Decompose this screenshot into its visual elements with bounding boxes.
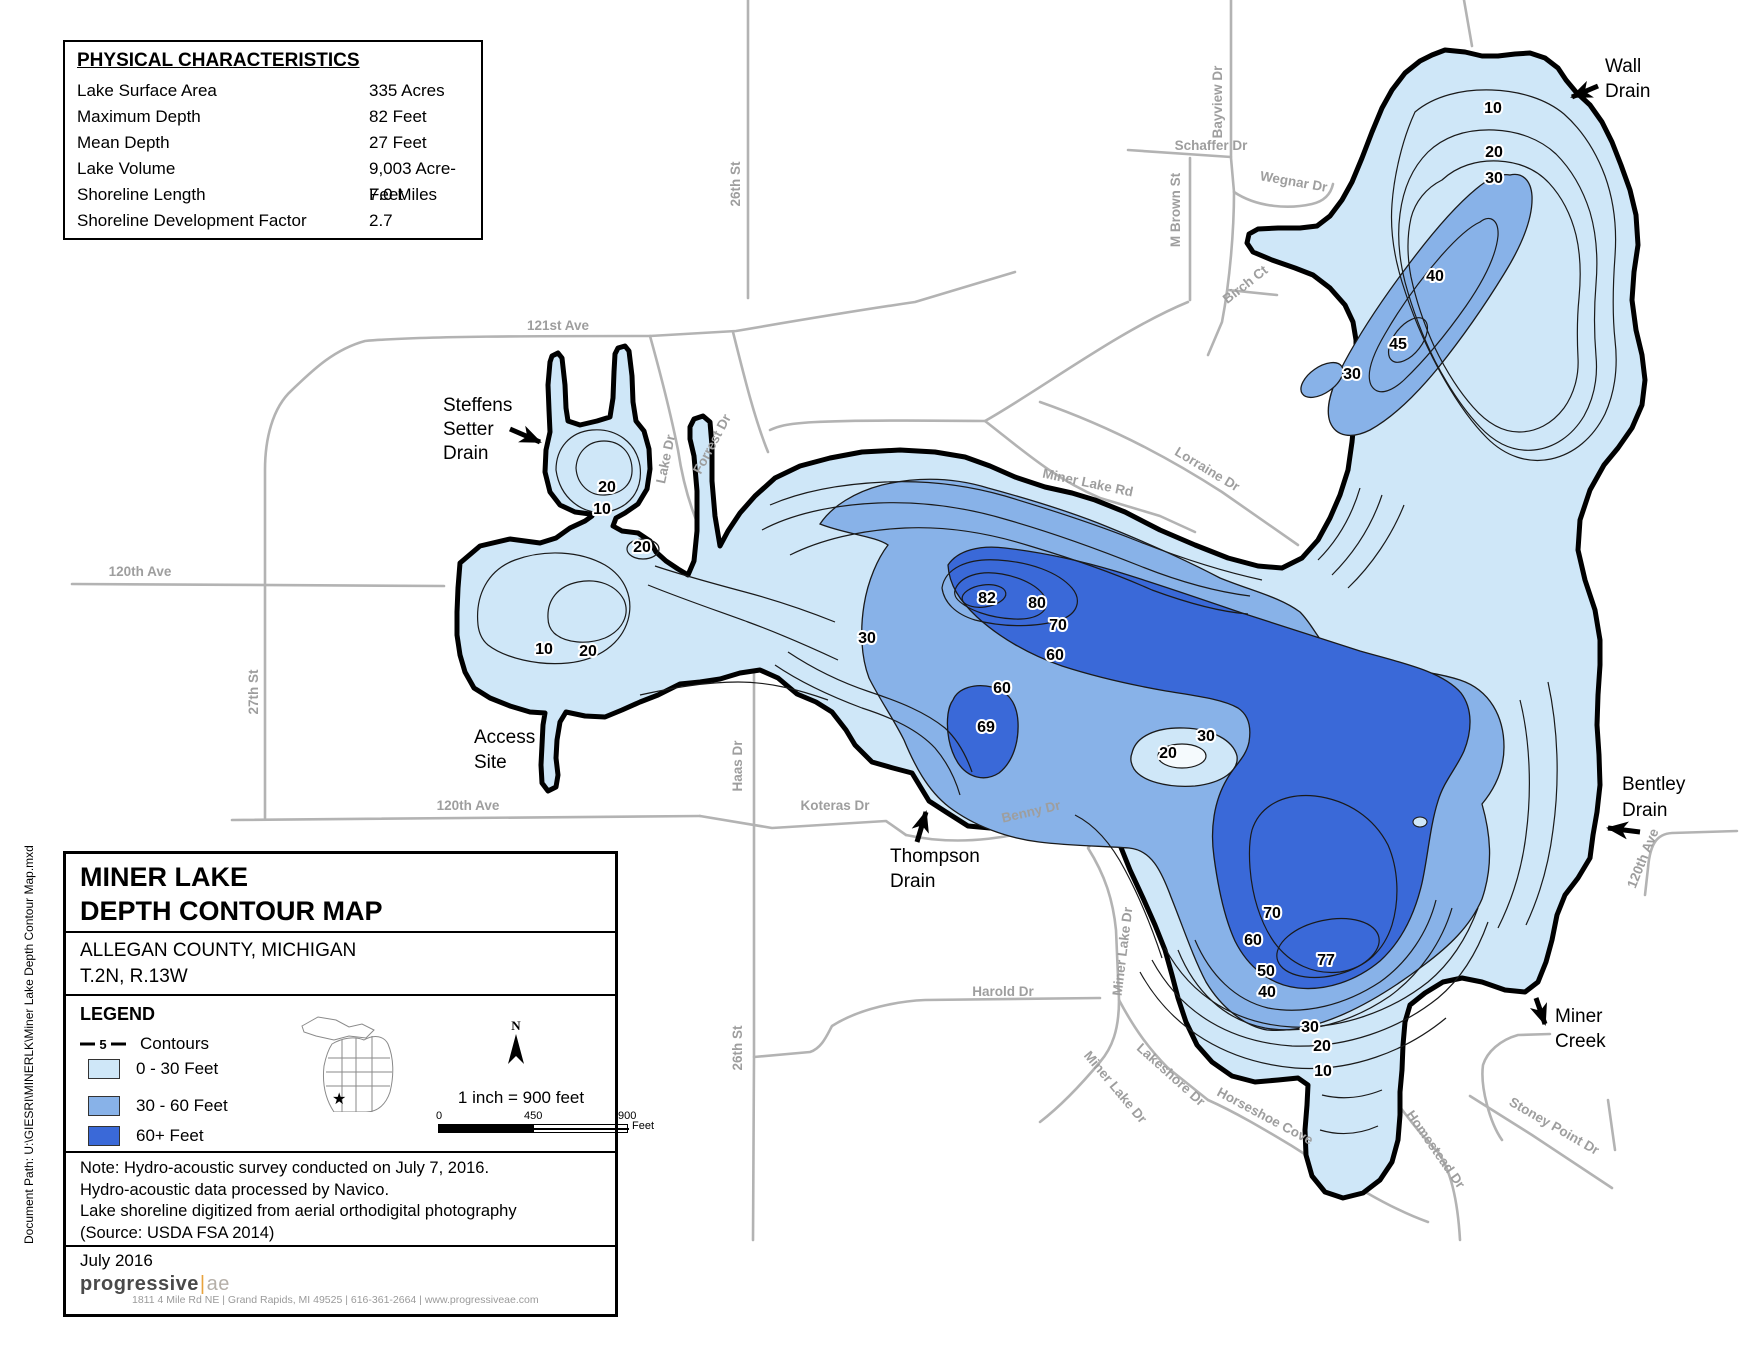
road-label: Schaffer Dr	[1175, 138, 1249, 153]
road-to-north-cluster	[985, 302, 1188, 421]
depth-label: 40	[1258, 984, 1276, 1001]
phys-value: 7.0 Miles	[369, 182, 437, 208]
road-label: Miner Lake Dr	[1081, 1048, 1150, 1127]
note-line: (Source: USDA FSA 2014)	[80, 1223, 601, 1245]
depth-label: 20	[633, 539, 651, 556]
location-star-icon: ★	[332, 1091, 346, 1108]
annotation-label: Thompson	[890, 846, 980, 867]
depth-label: 20	[1313, 1038, 1331, 1055]
road-label: 120th Ave	[1624, 826, 1662, 890]
steffens-setter-drain-annotation: Steffens Setter Drain	[443, 395, 540, 464]
legend-class-label: 0 - 30 Feet	[136, 1059, 218, 1079]
phys-label: Lake Surface Area	[77, 81, 217, 100]
road-label: Bayview Dr	[1210, 65, 1225, 139]
phys-label: Shoreline Development Factor	[77, 211, 307, 230]
annotation-label: Setter	[443, 419, 494, 440]
depth-label: 60	[1046, 647, 1064, 664]
phys-label: Mean Depth	[77, 133, 170, 152]
wall-drain-annotation: Wall Drain	[1572, 56, 1650, 102]
road-stub-se	[1608, 1100, 1615, 1150]
depth-label: 20	[579, 643, 597, 660]
company-address: 1811 4 Mile Rd NE | Grand Rapids, MI 495…	[80, 1294, 601, 1306]
annotation-label: Drain	[443, 443, 488, 464]
road-label: Harold Dr	[972, 984, 1034, 999]
depth-label: 45	[1389, 336, 1407, 353]
depth-label: 70	[1263, 905, 1281, 922]
map-title-line2: DEPTH CONTOUR MAP	[80, 894, 601, 928]
legend-contours-item: 5 Contours	[80, 1034, 209, 1054]
phys-label: Lake Volume	[77, 159, 175, 178]
map-subtitle-section: ALLEGAN COUNTY, MICHIGAN T.2N, R.13W	[66, 933, 615, 996]
phys-row: Lake Surface Area 335 Acres	[77, 78, 469, 104]
depth-label: 10	[1484, 100, 1502, 117]
contour-line-symbol: 5	[80, 1037, 128, 1051]
depth-label: 82	[978, 590, 996, 607]
road-koteras-dr	[700, 816, 906, 835]
legend-section: LEGEND 5 Contours 0 - 30 Feet 30 - 60 Fe…	[66, 996, 615, 1153]
road-label: M Brown St	[1168, 172, 1183, 247]
note-line: Lake shoreline digitized from aerial ort…	[80, 1201, 601, 1223]
road-label: 26th St	[728, 161, 743, 207]
annotation-label: Bentley	[1622, 774, 1686, 795]
michigan-inset-map: ★	[294, 1012, 404, 1117]
legend-swatch-60plus	[88, 1126, 120, 1146]
phys-row: Mean Depth 27 Feet	[77, 130, 469, 156]
annotation-label: Drain	[890, 871, 935, 892]
scale-bar	[438, 1124, 628, 1133]
depth-label: 10	[535, 641, 553, 658]
depth-label: 80	[1028, 595, 1046, 612]
logo-divider: |	[200, 1273, 206, 1295]
depth-label: 20	[1485, 144, 1503, 161]
road-stub-top	[1464, 0, 1472, 46]
phys-row: Lake Volume 9,003 Acre-Feet	[77, 156, 469, 182]
bentley-drain-annotation: Bentley Drain	[1608, 774, 1686, 832]
depth-label: 77	[1317, 952, 1335, 969]
road-harold-dr	[754, 998, 1100, 1057]
depth-label: 20	[598, 479, 616, 496]
legend-contours-label: Contours	[140, 1034, 209, 1054]
scale-ratio-text: 1 inch = 900 feet	[426, 1088, 616, 1108]
road-120th-ave-right	[1645, 831, 1737, 895]
road-label: Lake Dr	[653, 433, 678, 485]
road-label: 26th St	[730, 1025, 745, 1071]
depth-label: 60	[1244, 932, 1262, 949]
phys-label: Shoreline Length	[77, 185, 206, 204]
depth-label: 69	[977, 719, 995, 736]
depth-label: 50	[1257, 963, 1275, 980]
phys-value: 82 Feet	[369, 104, 427, 130]
note-line: Note: Hydro-acoustic survey conducted on…	[80, 1158, 601, 1180]
depth-label: 10	[593, 501, 611, 518]
notes-section: Note: Hydro-acoustic survey conducted on…	[66, 1153, 615, 1247]
township-label: T.2N, R.13W	[80, 964, 601, 990]
map-date: July 2016	[80, 1251, 601, 1271]
svg-text:5: 5	[99, 1037, 106, 1051]
map-title-section: MINER LAKE DEPTH CONTOUR MAP	[66, 854, 615, 933]
road-120th-ave-left	[72, 584, 444, 586]
logo-text: progressive	[80, 1273, 199, 1295]
road-label: Lakeshore Dr	[1134, 1040, 1209, 1109]
phys-value: 2.7	[369, 208, 393, 234]
annotation-label: Site	[474, 752, 507, 773]
road-label: 120th Ave	[437, 798, 500, 813]
depth-label: 30	[1485, 170, 1503, 187]
depth-label: 40	[1426, 268, 1444, 285]
road-haas-26th	[753, 632, 754, 1240]
road-120th-ave-bottom	[232, 816, 700, 820]
annotation-label: Drain	[1622, 800, 1667, 821]
road-label: Horseshoe Cove	[1215, 1084, 1317, 1147]
logo-suffix: ae	[207, 1273, 230, 1295]
depth-label: 30	[1343, 366, 1361, 383]
phys-row: Shoreline Length 7.0 Miles	[77, 182, 469, 208]
county-label: ALLEGAN COUNTY, MICHIGAN	[80, 938, 601, 964]
document-path-text: Document Path: U:\GIESRI\MINERLK\Miner L…	[22, 845, 36, 1244]
road-bayview-dr	[1231, 0, 1234, 192]
phys-value: 27 Feet	[369, 130, 427, 156]
physical-characteristics-title: PHYSICAL CHARACTERISTICS	[77, 50, 469, 72]
phys-row: Maximum Depth 82 Feet	[77, 104, 469, 130]
annotation-label: Creek	[1555, 1031, 1606, 1052]
depth-label: 30	[858, 630, 876, 647]
annotation-label: Access	[474, 727, 535, 748]
annotation-label: Miner	[1555, 1006, 1603, 1027]
contour-dot	[1413, 817, 1427, 827]
legend-class-label: 60+ Feet	[136, 1126, 204, 1146]
annotation-label: Drain	[1605, 81, 1650, 102]
road-label: Homestead Dr	[1403, 1108, 1468, 1192]
scale-unit-label: Feet	[632, 1120, 654, 1132]
miner-creek-annotation: Miner Creek	[1536, 998, 1606, 1052]
scale-tick: 0	[436, 1110, 442, 1122]
road-forrest-dr	[733, 332, 768, 452]
road-label: Koteras Dr	[800, 798, 870, 813]
road-label: 121st Ave	[527, 318, 590, 333]
access-site-annotation: Access Site	[474, 727, 535, 773]
legend-class-label: 30 - 60 Feet	[136, 1096, 228, 1116]
phys-label: Maximum Depth	[77, 107, 201, 126]
depth-label: 20	[1159, 745, 1177, 762]
phys-row: Shoreline Development Factor 2.7	[77, 208, 469, 234]
annotation-label: Steffens	[443, 395, 512, 416]
depth-label: 70	[1049, 617, 1067, 634]
phys-value: 335 Acres	[369, 78, 445, 104]
north-label: N	[496, 1018, 536, 1034]
legend-heading: LEGEND	[80, 1004, 155, 1025]
depth-label: 30	[1301, 1019, 1319, 1036]
footer-section: July 2016 progressive|ae 1811 4 Mile Rd …	[66, 1247, 615, 1308]
note-line: Hydro-acoustic data processed by Navico.	[80, 1180, 601, 1202]
road-label: 27th St	[246, 669, 261, 715]
road-label: 120th Ave	[109, 564, 172, 579]
depth-label: 10	[1314, 1063, 1332, 1080]
annotation-label: Wall	[1605, 56, 1641, 77]
north-arrow-icon	[505, 1034, 527, 1068]
map-title-line1: MINER LAKE	[80, 860, 601, 894]
depth-label: 30	[1197, 728, 1215, 745]
scale-tick: 450	[524, 1110, 542, 1122]
north-arrow: N	[496, 1018, 536, 1073]
depth-label: 60	[993, 680, 1011, 697]
road-label: Wegnar Dr	[1259, 168, 1329, 195]
physical-characteristics-box: PHYSICAL CHARACTERISTICS Lake Surface Ar…	[63, 40, 483, 240]
legend-swatch-30-60	[88, 1096, 120, 1116]
legend-swatch-0-30	[88, 1059, 120, 1079]
road-label: Haas Dr	[730, 740, 745, 792]
title-block: MINER LAKE DEPTH CONTOUR MAP ALLEGAN COU…	[63, 851, 618, 1317]
company-logo: progressive|ae	[80, 1273, 601, 1296]
